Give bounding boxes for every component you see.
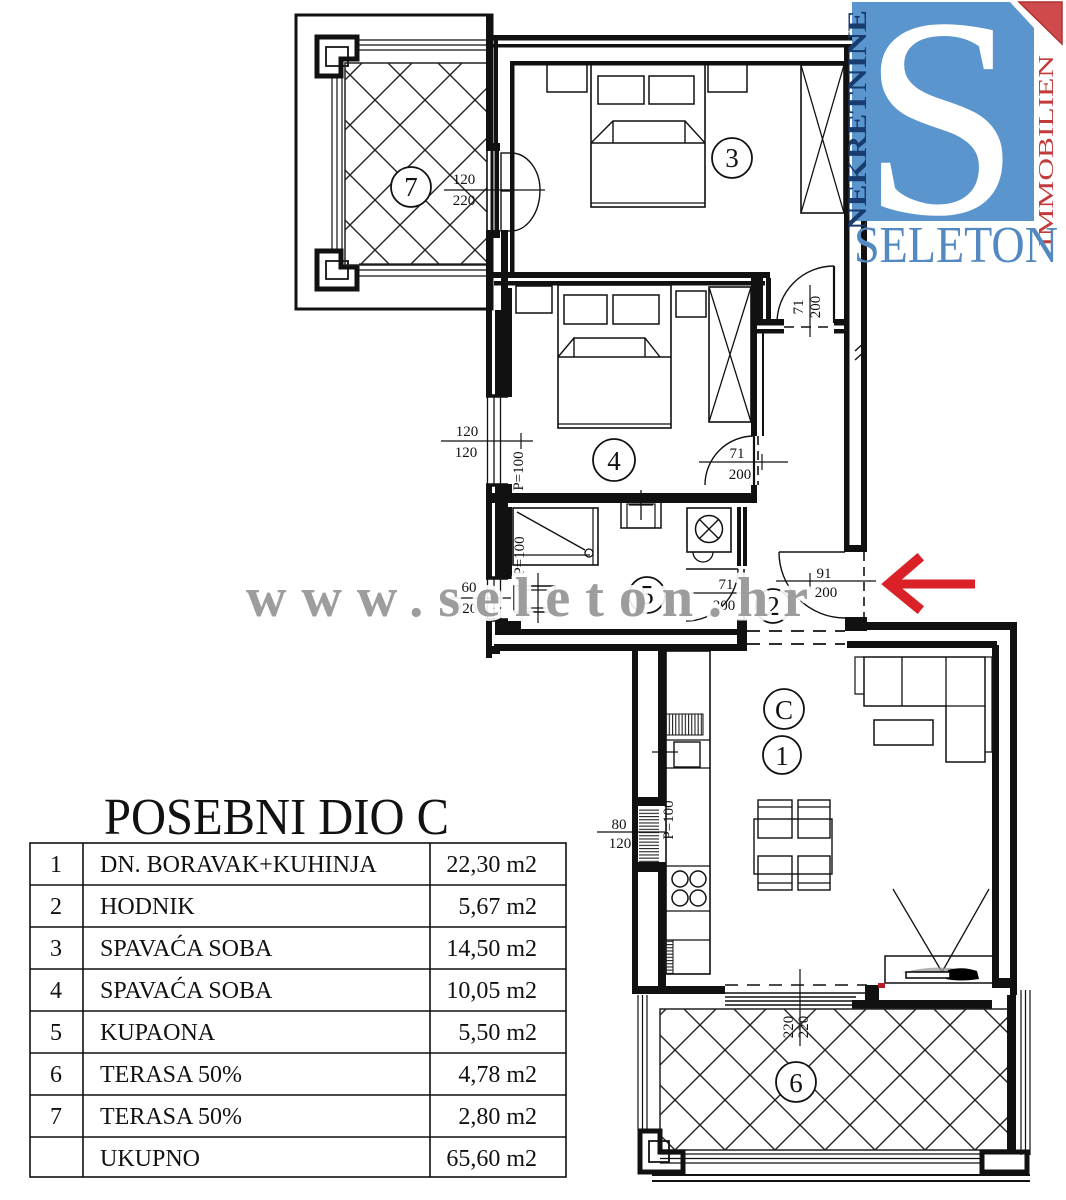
svg-text:6: 6 xyxy=(50,1062,62,1088)
svg-text:10,05 m2: 10,05 m2 xyxy=(446,978,537,1004)
svg-text:120: 120 xyxy=(456,424,479,440)
svg-text:SPAVAĆA SOBA: SPAVAĆA SOBA xyxy=(100,977,273,1004)
svg-text:7: 7 xyxy=(404,172,418,202)
svg-text:1: 1 xyxy=(50,852,62,878)
svg-text:4: 4 xyxy=(607,446,621,476)
svg-text:POSEBNI DIO C: POSEBNI DIO C xyxy=(104,789,449,846)
svg-text:91: 91 xyxy=(817,566,832,582)
svg-text:P=100: P=100 xyxy=(511,451,527,490)
svg-text:TERASA 50%: TERASA 50% xyxy=(100,1062,242,1088)
svg-text:71: 71 xyxy=(730,446,745,462)
svg-text:120: 120 xyxy=(453,172,476,188)
svg-text:5,50 m2: 5,50 m2 xyxy=(458,1020,537,1046)
svg-text:5: 5 xyxy=(50,1020,62,1046)
svg-text:2: 2 xyxy=(50,894,62,920)
svg-text:KUPAONA: KUPAONA xyxy=(100,1020,216,1046)
svg-text:NEKRETNINE: NEKRETNINE xyxy=(843,10,872,230)
svg-text:65,60 m2: 65,60 m2 xyxy=(446,1146,537,1172)
svg-text:P=100: P=100 xyxy=(661,800,677,839)
svg-text:2,80 m2: 2,80 m2 xyxy=(458,1104,537,1130)
svg-text:14,50 m2: 14,50 m2 xyxy=(446,936,537,962)
svg-text:SELETON: SELETON xyxy=(854,217,1058,274)
svg-text:200: 200 xyxy=(808,296,824,319)
svg-text:UKUPNO: UKUPNO xyxy=(100,1146,200,1172)
svg-text:4,78 m2: 4,78 m2 xyxy=(458,1062,537,1088)
svg-text:TERASA 50%: TERASA 50% xyxy=(100,1104,242,1130)
svg-text:1: 1 xyxy=(775,741,789,771)
svg-text:4: 4 xyxy=(50,978,62,1004)
svg-text:7: 7 xyxy=(50,1104,62,1130)
svg-text:200: 200 xyxy=(729,467,752,483)
svg-text:71: 71 xyxy=(791,300,807,315)
svg-text:C: C xyxy=(775,695,793,725)
svg-text:2: 2 xyxy=(766,591,780,621)
svg-text:DN. BORAVAK+KUHINJA: DN. BORAVAK+KUHINJA xyxy=(100,852,377,878)
svg-text:6: 6 xyxy=(789,1068,803,1098)
svg-text:80: 80 xyxy=(612,817,627,833)
svg-text:5,67 m2: 5,67 m2 xyxy=(458,894,537,920)
svg-text:SPAVAĆA SOBA: SPAVAĆA SOBA xyxy=(100,935,273,962)
svg-text:HODNIK: HODNIK xyxy=(100,894,195,920)
svg-text:22,30 m2: 22,30 m2 xyxy=(446,852,537,878)
svg-text:200: 200 xyxy=(815,585,838,601)
svg-text:120: 120 xyxy=(609,836,632,852)
svg-text:3: 3 xyxy=(50,936,62,962)
svg-text:3: 3 xyxy=(725,143,739,173)
svg-text:220: 220 xyxy=(453,193,476,209)
svg-text:120: 120 xyxy=(455,445,478,461)
